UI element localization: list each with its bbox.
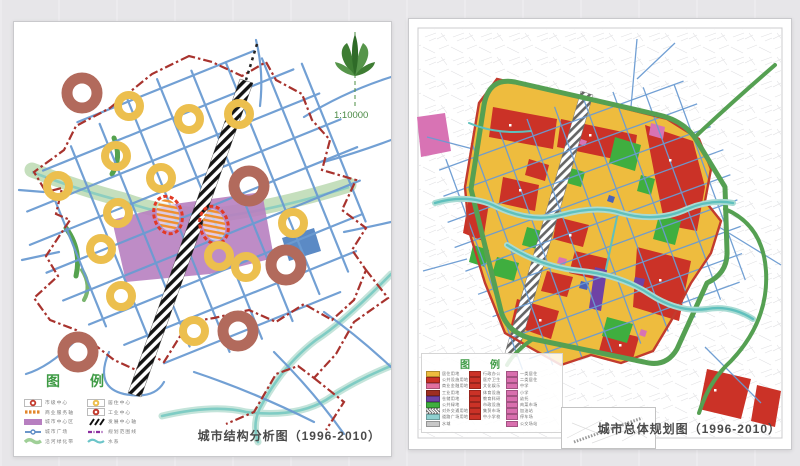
legend-label: 肉菜市场 — [520, 402, 560, 408]
legend-row: 城市广场 规划范围线 — [24, 427, 204, 437]
legend-label: 小学 — [520, 390, 560, 396]
legend-row: 居住用地 行政办公 一类居住 — [426, 371, 560, 377]
legend-label: 行政办公 — [483, 371, 506, 377]
swatch — [426, 371, 440, 377]
legend-label: 中学 — [520, 383, 560, 389]
legend-label: 仓储用地 — [442, 396, 469, 402]
legend-label: 水系 — [108, 438, 142, 445]
legend-label: 发展中心轴 — [108, 418, 142, 425]
legend-label: 文化娱乐 — [483, 383, 506, 389]
legend-label: 体育设施 — [483, 390, 506, 396]
swatch — [469, 383, 481, 389]
legend-label: 加油站 — [520, 408, 560, 414]
legend-label: 公共绿地 — [442, 402, 469, 408]
legend-label: 对外交通用地 — [442, 408, 469, 414]
right-map-title: 城市总体规划图（1996-2010） — [598, 420, 781, 437]
development-axis-swatch-icon — [87, 418, 105, 426]
legend-label: 工业中心 — [108, 409, 142, 416]
legend-label: 二类居住 — [520, 377, 560, 383]
legend-label: 市政设施 — [483, 402, 506, 408]
left-map-title: 城市结构分析图（1996-2010） — [198, 427, 381, 444]
legend-row: 对外交通用地 集贸市场 加油站 — [426, 408, 560, 414]
legend-label: 停车场 — [520, 414, 560, 420]
screenshot-stage: 1:10000 图例 市级中心 居住中心 商业服务轴 工业中心 城市中心区 — [0, 0, 800, 466]
swatch — [426, 414, 440, 420]
legend-label: 一类居住 — [520, 371, 560, 377]
legend-label: 市级中心 — [45, 399, 79, 406]
swatch — [506, 414, 518, 420]
legend-label: 集贸市场 — [483, 408, 506, 414]
right-map-panel: 图例 居住用地 行政办公 一类居住 公共设施用地 医疗卫生 二类居住 商业金融用… — [408, 18, 792, 450]
swatch — [469, 371, 481, 377]
legend-label: 教育科研 — [483, 396, 506, 402]
legend-label: 居住中心 — [108, 399, 142, 406]
green-belt-swatch-icon — [24, 437, 42, 445]
legend-label: 公共设施用地 — [442, 377, 469, 383]
industrial-center-swatch-icon — [87, 408, 105, 416]
swatch — [469, 414, 481, 420]
swatch — [426, 396, 440, 402]
boundary-swatch-icon — [87, 428, 105, 436]
legend-row: 道路广场用地 中小学校 停车场 — [426, 414, 560, 420]
central-district-swatch-icon — [24, 418, 42, 426]
left-map-panel: 1:10000 图例 市级中心 居住中心 商业服务轴 工业中心 城市中心区 — [13, 21, 392, 457]
legend-row: 水域 公交场站 — [426, 421, 560, 427]
swatch — [506, 396, 518, 402]
swatch — [426, 390, 440, 396]
legend-label: 工业用地 — [442, 390, 469, 396]
legend-label: 水域 — [442, 421, 469, 427]
water-swatch-icon — [87, 437, 105, 445]
legend-row: 市级中心 居住中心 — [24, 398, 204, 408]
legend-row: 商业服务轴 工业中心 — [24, 408, 204, 418]
legend-label: 城市广场 — [45, 428, 79, 435]
swatch — [469, 396, 481, 402]
legend-row: 工业用地 体育设施 小学 — [426, 390, 560, 396]
legend-row: 公共绿地 市政设施 肉菜市场 — [426, 402, 560, 408]
legend-label: 居住用地 — [442, 371, 469, 377]
legend-row: 城市中心区 发展中心轴 — [24, 417, 204, 427]
scale-label: 1:10000 — [334, 110, 368, 121]
residential-center-swatch-icon — [87, 399, 105, 407]
city-center-swatch-icon — [24, 399, 42, 407]
legend-row: 仓储用地 教育科研 幼托 — [426, 396, 560, 402]
swatch — [506, 402, 518, 408]
legend-label: 城市中心区 — [45, 418, 79, 425]
legend-row: 沿河绿化带 水系 — [24, 436, 204, 446]
swatch — [506, 421, 518, 427]
swatch — [426, 421, 440, 427]
swatch — [426, 383, 440, 389]
legend-label: 医疗卫生 — [483, 377, 506, 383]
commercial-axis-swatch-icon — [24, 408, 42, 416]
legend-rows: 居住用地 行政办公 一类居住 公共设施用地 医疗卫生 二类居住 商业金融用地 文… — [426, 371, 560, 427]
swatch — [469, 377, 481, 383]
swatch — [506, 390, 518, 396]
legend-label: 幼托 — [520, 396, 560, 402]
legend-row: 公共设施用地 医疗卫生 二类居住 — [426, 377, 560, 383]
swatch — [469, 402, 481, 408]
north-compass-icon — [335, 32, 375, 106]
left-legend-title: 图例 — [46, 371, 134, 391]
swatch — [506, 377, 518, 383]
right-legend: 图例 居住用地 行政办公 一类居住 公共设施用地 医疗卫生 二类居住 商业金融用… — [421, 353, 563, 433]
swatch — [426, 408, 440, 414]
swatch — [506, 383, 518, 389]
swatch — [506, 371, 518, 377]
legend-label: 道路广场用地 — [442, 414, 469, 420]
legend-label: 商业金融用地 — [442, 383, 469, 389]
swatch — [469, 390, 481, 396]
legend-label: 商业服务轴 — [45, 409, 79, 416]
swatch — [506, 408, 518, 414]
left-legend: 市级中心 居住中心 商业服务轴 工业中心 城市中心区 发展中心轴 — [24, 398, 204, 446]
swatch — [469, 408, 481, 414]
legend-label: 规划范围线 — [108, 428, 142, 435]
right-legend-title: 图例 — [460, 356, 520, 371]
legend-label: 沿河绿化带 — [45, 438, 79, 445]
legend-row: 商业金融用地 文化娱乐 中学 — [426, 383, 560, 389]
legend-label: 公交场站 — [520, 421, 560, 427]
swatch — [426, 402, 440, 408]
city-plaza-swatch-icon — [24, 428, 42, 436]
swatch — [426, 377, 440, 383]
legend-label: 中小学校 — [483, 414, 506, 420]
